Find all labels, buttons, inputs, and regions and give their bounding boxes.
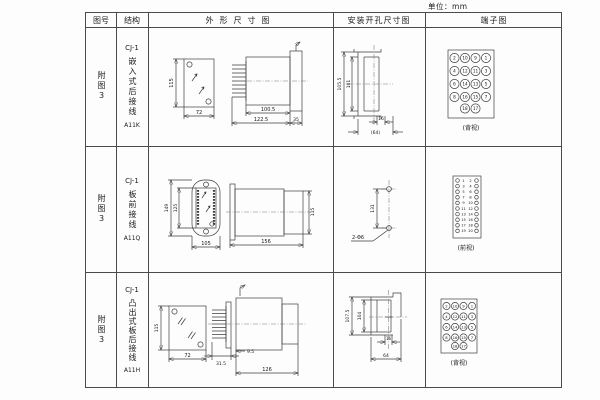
terminal-svg-a11q: 1234567891011121314151617181920 (前视) — [425, 146, 563, 272]
mount-type-label: 嵌入式后接线 — [128, 57, 136, 117]
dim-slot-width: 16 — [378, 116, 384, 122]
dim-depth-body: 100.5 — [261, 107, 275, 113]
dim-outer-height: 107.5 — [345, 309, 351, 322]
svg-text:10: 10 — [462, 56, 468, 61]
dim-gap-depth: 9.5 — [247, 349, 254, 355]
header-figure-no: 图号 — [86, 13, 116, 27]
mount-type-label: 凸出式板后接线 — [128, 299, 136, 362]
model-label: CJ-1 — [125, 177, 139, 185]
svg-text:4: 4 — [469, 184, 472, 188]
svg-text:1: 1 — [485, 56, 488, 61]
svg-text:11: 11 — [461, 314, 466, 319]
terminal-strip: 1234567891011121314151617181920 — [456, 179, 479, 234]
dim-fin-depth: 31.5 — [216, 361, 226, 367]
dim-front-width: 105 — [201, 241, 211, 247]
code-label: A11Q — [124, 235, 140, 242]
svg-text:5: 5 — [485, 82, 488, 87]
install-svg-a11q: 131 2-Φ6 — [333, 146, 425, 272]
svg-text:13: 13 — [473, 82, 479, 87]
dim-depth-total: 122.5 — [254, 117, 268, 123]
svg-text:13: 13 — [461, 324, 466, 329]
svg-text:7: 7 — [471, 335, 474, 340]
svg-text:9: 9 — [462, 303, 465, 308]
header-outline-dims: 外形尺寸图 — [148, 13, 333, 27]
svg-text:16: 16 — [453, 335, 458, 340]
dim-depth-total: 156 — [261, 239, 271, 245]
svg-text:5: 5 — [462, 190, 464, 194]
install-drawing-a11h: 107.5 104 16 64 — [333, 272, 425, 388]
svg-text:9: 9 — [462, 201, 465, 205]
dim-overall-width: 64 — [383, 353, 389, 359]
svg-text:14: 14 — [462, 82, 468, 87]
dim-front-height: 115 — [169, 78, 175, 88]
svg-text:18: 18 — [453, 343, 458, 348]
unit-label: 单位：mm — [428, 1, 468, 12]
header-terminal-diagram: 端子图 — [425, 13, 563, 27]
svg-text:17: 17 — [461, 343, 466, 348]
svg-text:15: 15 — [473, 95, 479, 100]
svg-text:14: 14 — [453, 324, 458, 329]
svg-text:16: 16 — [468, 218, 473, 222]
dim-hole-spacing: 131 — [370, 204, 376, 213]
terminal-svg-a11k: 210914121136141358161571817 (背视) — [425, 27, 563, 146]
svg-text:7: 7 — [485, 95, 488, 100]
model-label: CJ-1 — [125, 44, 139, 52]
svg-text:6: 6 — [469, 190, 472, 194]
svg-text:12: 12 — [462, 69, 468, 74]
svg-text:2: 2 — [445, 303, 448, 308]
svg-text:5: 5 — [471, 324, 474, 329]
svg-text:2: 2 — [469, 179, 471, 183]
svg-text:11: 11 — [473, 69, 479, 74]
dim-depth-total: 126 — [262, 367, 272, 373]
dim-flange-depth: 35 — [293, 117, 299, 123]
svg-text:10: 10 — [453, 303, 458, 308]
svg-text:14: 14 — [468, 212, 473, 216]
a11k-side-view: 100.5 122.5 35 — [232, 42, 308, 126]
structure-a11k: CJ-1 嵌入式后接线 A11K — [116, 27, 148, 146]
outline-drawing-a11h: 115 72 — [148, 272, 333, 388]
terminal-grid: 210914121136141358161571817 — [443, 302, 476, 349]
terminal-diagram-a11q: 1234567891011121314151617181920 (前视) — [425, 146, 563, 272]
dim-front-height: 115 — [154, 324, 160, 333]
dim-inner-height: 125 — [173, 204, 179, 213]
svg-text:3: 3 — [471, 314, 474, 319]
outline-svg-a11q: 149 125 105 — [148, 146, 333, 272]
install-drawing-a11k: 105.5 101 16 (64) — [333, 27, 425, 146]
terminal-view-label: (背视) — [451, 359, 468, 367]
dim-front-width: 72 — [184, 353, 190, 359]
mount-type-label: 板前接线 — [128, 190, 136, 230]
svg-text:15: 15 — [461, 335, 466, 340]
svg-text:8: 8 — [469, 196, 472, 200]
terminal-diagram-a11h: 210914121136141358161571817 (背视) — [425, 272, 563, 388]
figure-no-a11h: 附图3 — [86, 272, 116, 388]
svg-text:12: 12 — [468, 207, 473, 211]
a11q-front-view: 149 125 105 — [164, 180, 220, 250]
svg-text:8: 8 — [445, 335, 448, 340]
spec-sheet-page: 单位：mm 图号 结构 外形尺寸图 安装开孔尺寸图 端子图 附图3 CJ-1 嵌… — [0, 0, 600, 400]
svg-text:2: 2 — [453, 56, 456, 61]
terminal-diagram-a11k: 210914121136141358161571817 (背视) — [425, 27, 563, 146]
outline-drawing-a11k: 115 72 — [148, 27, 333, 146]
svg-text:20: 20 — [468, 229, 473, 233]
svg-text:15: 15 — [461, 218, 466, 222]
svg-text:12: 12 — [453, 314, 458, 319]
svg-text:4: 4 — [453, 69, 456, 74]
header-structure: 结构 — [116, 13, 148, 27]
svg-text:10: 10 — [468, 201, 473, 205]
spec-table: 图号 结构 外形尺寸图 安装开孔尺寸图 端子图 附图3 CJ-1 嵌入式后接线 … — [85, 12, 562, 388]
svg-text:1: 1 — [471, 303, 474, 308]
install-drawing-a11q: 131 2-Φ6 — [333, 146, 425, 272]
svg-text:11: 11 — [461, 207, 466, 211]
structure-a11h: CJ-1 凸出式板后接线 A11H — [116, 272, 148, 388]
a11h-side-view: 31.5 9.5 126 — [204, 285, 306, 376]
hole-size-label: 2-Φ6 — [352, 235, 364, 241]
outline-svg-a11k: 115 72 — [148, 27, 333, 146]
svg-text:3: 3 — [485, 69, 488, 74]
svg-text:17: 17 — [461, 224, 466, 228]
svg-text:1: 1 — [462, 179, 464, 183]
dim-front-width: 72 — [196, 110, 202, 116]
svg-text:19: 19 — [461, 229, 466, 233]
svg-text:4: 4 — [445, 314, 448, 319]
a11k-front-view: 115 72 — [169, 59, 214, 119]
svg-text:18: 18 — [468, 224, 473, 228]
dim-inner-height: 104 — [357, 312, 363, 321]
outline-svg-a11h: 115 72 — [148, 272, 333, 388]
header-install-dims: 安装开孔尺寸图 — [333, 13, 425, 27]
svg-text:9: 9 — [474, 56, 477, 61]
svg-text:18: 18 — [462, 106, 468, 111]
install-svg-a11h: 107.5 104 16 64 — [333, 272, 425, 388]
svg-text:16: 16 — [462, 95, 468, 100]
a11h-front-view: 115 72 — [154, 306, 206, 362]
dim-rear-height: 115 — [310, 208, 316, 217]
terminal-view-label: (前视) — [458, 244, 475, 252]
svg-text:6: 6 — [453, 82, 456, 87]
terminal-grid: 210914121136141358161571817 — [450, 53, 491, 113]
terminal-svg-a11h: 210914121136141358161571817 (背视) — [425, 272, 563, 388]
dim-front-height: 149 — [164, 204, 170, 213]
dim-slot-width: 16 — [386, 336, 392, 341]
structure-a11q: CJ-1 板前接线 A11Q — [116, 146, 148, 272]
code-label: A11H — [124, 367, 140, 374]
figure-no-a11k: 附图3 — [86, 27, 116, 146]
svg-text:3: 3 — [462, 184, 464, 188]
svg-text:6: 6 — [445, 324, 448, 329]
dim-overall-width: (64) — [371, 130, 380, 136]
svg-text:17: 17 — [473, 106, 479, 111]
svg-text:7: 7 — [462, 196, 464, 200]
code-label: A11K — [124, 122, 140, 129]
model-label: CJ-1 — [125, 286, 139, 294]
svg-text:8: 8 — [453, 95, 456, 100]
a11q-side-view: 115 156 — [226, 184, 316, 248]
figure-no-a11q: 附图3 — [86, 146, 116, 272]
svg-text:13: 13 — [461, 212, 466, 216]
outline-drawing-a11q: 149 125 105 — [148, 146, 333, 272]
dim-outer-height: 105.5 — [337, 77, 343, 90]
install-svg-a11k: 105.5 101 16 (64) — [333, 27, 425, 146]
terminal-view-label: (背视) — [463, 124, 480, 132]
